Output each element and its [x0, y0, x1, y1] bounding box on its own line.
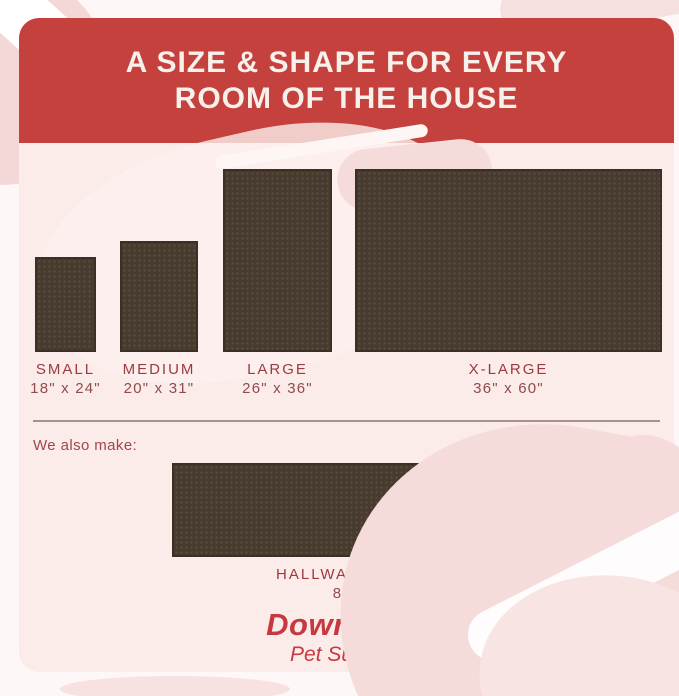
- header-title-line-1: A SIZE & SHAPE FOR EVERY: [126, 45, 568, 81]
- divider-line: [33, 420, 660, 422]
- header-title-line-2: ROOM OF THE HOUSE: [175, 81, 519, 117]
- bottom-left-pink-wave-decoration: [60, 676, 290, 696]
- mat-small-swatch: [35, 257, 96, 352]
- mat-size-name: SMALL: [30, 361, 101, 378]
- mat-size-dimensions: 20" x 31": [123, 380, 196, 398]
- mat-size-dimensions: 18" x 24": [30, 380, 101, 398]
- infographic-canvas: A SIZE & SHAPE FOR EVERY ROOM OF THE HOU…: [0, 0, 679, 696]
- mat-small-label: SMALL 18" x 24": [30, 361, 101, 398]
- mat-large-swatch: [223, 169, 332, 352]
- mat-size-name: LARGE: [242, 361, 313, 378]
- mat-group-x-large: X-LARGE 36" x 60": [355, 169, 662, 352]
- mat-x-large-swatch: [355, 169, 662, 352]
- mat-group-large: LARGE 26" x 36": [223, 169, 332, 352]
- mat-group-medium: MEDIUM 20" x 31": [120, 241, 198, 352]
- mat-size-dimensions: 26" x 36": [242, 380, 313, 398]
- mat-size-name: MEDIUM: [123, 361, 196, 378]
- we-also-make-label: We also make:: [33, 437, 137, 454]
- mat-medium-label: MEDIUM 20" x 31": [123, 361, 196, 398]
- mat-group-small: SMALL 18" x 24": [35, 257, 96, 352]
- mat-medium-swatch: [120, 241, 198, 352]
- mat-x-large-label: X-LARGE 36" x 60": [469, 361, 549, 398]
- mat-large-label: LARGE 26" x 36": [242, 361, 313, 398]
- mat-size-name: X-LARGE: [469, 361, 549, 378]
- mat-size-dimensions: 36" x 60": [469, 380, 549, 398]
